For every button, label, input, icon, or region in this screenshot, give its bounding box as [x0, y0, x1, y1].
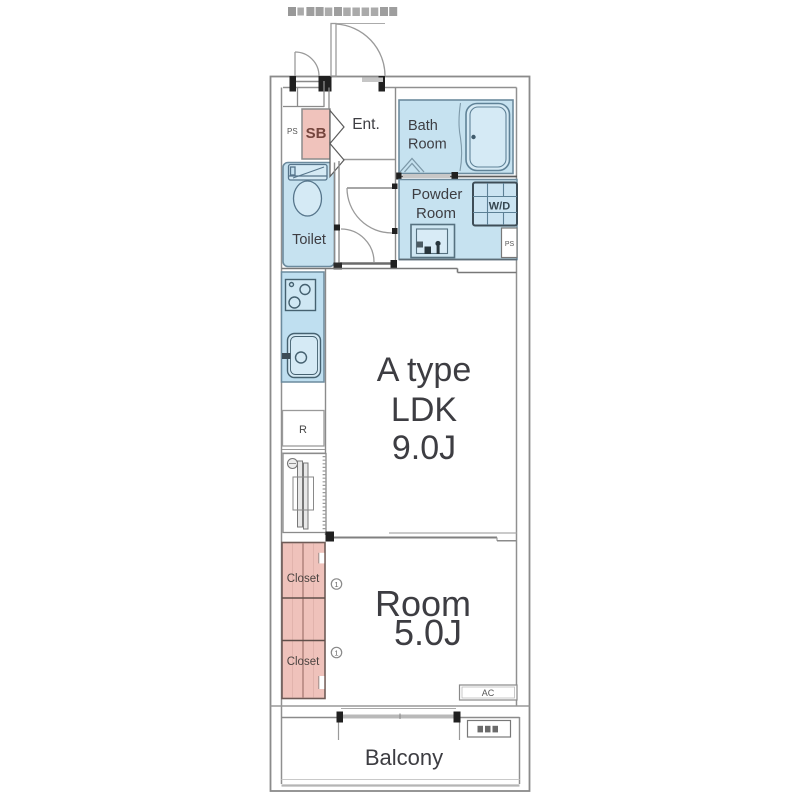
svg-text:A type: A type: [377, 351, 472, 389]
svg-text:1: 1: [334, 580, 338, 589]
svg-text:Bath: Bath: [408, 118, 438, 134]
svg-text:Powder: Powder: [412, 186, 463, 203]
svg-text:R: R: [299, 424, 307, 436]
svg-text:5.0J: 5.0J: [394, 612, 462, 653]
svg-text:9.0J: 9.0J: [392, 429, 456, 467]
svg-text:LDK: LDK: [391, 391, 457, 429]
svg-text:Closet: Closet: [287, 656, 320, 668]
svg-text:Balcony: Balcony: [365, 745, 443, 770]
svg-text:Ent.: Ent.: [352, 116, 380, 133]
svg-text:PS: PS: [505, 241, 515, 248]
svg-text:Toilet: Toilet: [292, 232, 326, 248]
svg-text:Room: Room: [416, 205, 456, 222]
svg-text:AC: AC: [482, 688, 495, 698]
svg-text:SB: SB: [306, 125, 327, 142]
svg-text:1: 1: [334, 649, 338, 658]
svg-text:Room: Room: [408, 137, 447, 153]
svg-text:PS: PS: [287, 127, 298, 136]
svg-text:Closet: Closet: [287, 573, 320, 585]
svg-text:W/D: W/D: [489, 201, 510, 213]
